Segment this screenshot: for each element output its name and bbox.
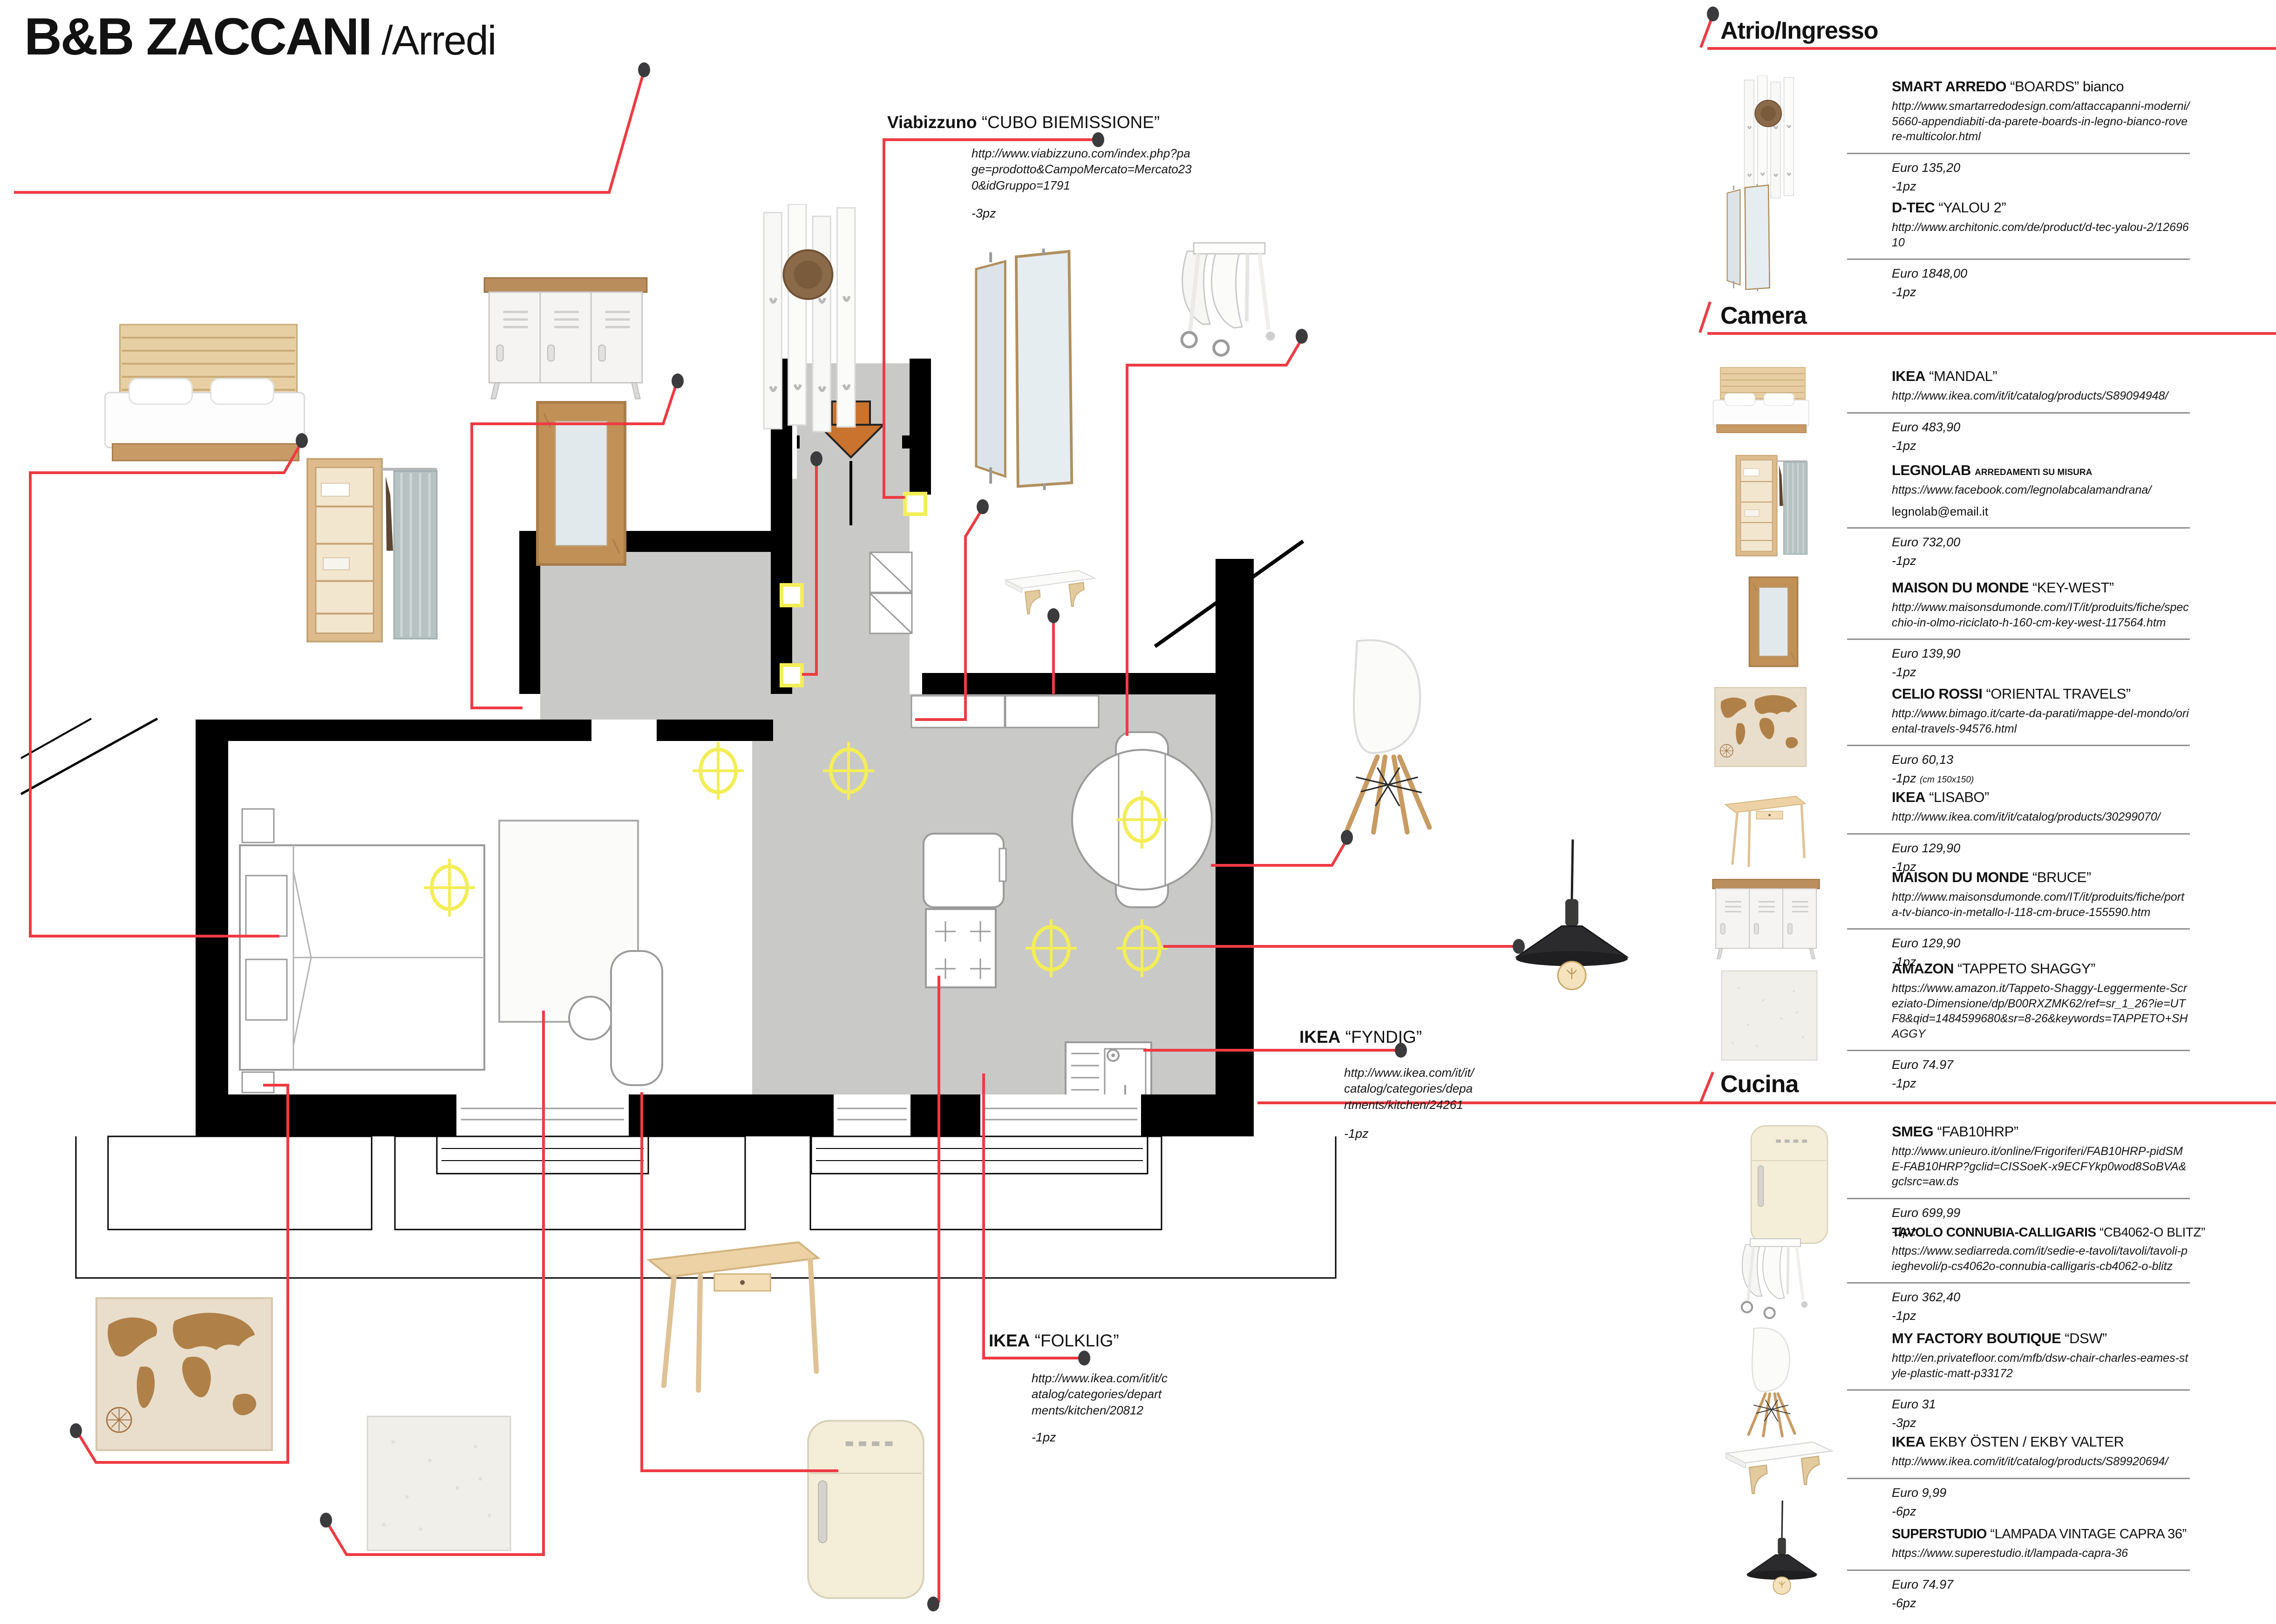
divider [1847, 745, 2190, 746]
plan-closet [870, 552, 912, 633]
product-item-tappeto-shaggy: AMAZON “TAPPETO SHAGGY” https://www.amaz… [1892, 960, 2190, 1091]
divider [1847, 639, 2190, 640]
product-item-capra: SUPERSTUDIO “LAMPADA VINTAGE CAPRA 36” h… [1892, 1527, 2190, 1610]
product-item-mandal: IKEA “MANDAL” http://www.ikea.com/it/it/… [1892, 368, 2190, 453]
photo-lamp-capra [1516, 840, 1628, 990]
thumb-bed [1707, 367, 1819, 434]
thumb-coatrack [1742, 75, 1798, 202]
plan-bed [240, 809, 484, 1093]
product-item-lisabo: IKEA “LISABO” http://www.ikea.com/it/it/… [1892, 789, 2190, 874]
divider [1847, 1050, 2190, 1051]
photo-table-blitz [1182, 243, 1275, 355]
divider [1847, 1282, 2190, 1284]
thumb-wardrobe [1733, 451, 1810, 558]
divider [1847, 527, 2190, 529]
photo-shelf-ekby [1006, 571, 1095, 614]
product-item-smeg: SMEG “FAB10HRP” http://www.unieuro.it/on… [1892, 1123, 2190, 1239]
divider [1847, 1198, 2190, 1199]
product-item-dtec: D-TEC “YALOU 2” http://www.architonic.co… [1892, 199, 2190, 299]
photo-rug-shaggy [367, 1416, 510, 1550]
page-title: B&B ZACCANI /Arredi [24, 7, 496, 67]
section-title-cucina: Cucina [1720, 1070, 1798, 1098]
spec-board: B&B ZACCANI /Arredi Viabizzuno “CUBO BIE… [0, 0, 2276, 1624]
photo-bed-mandal [105, 325, 305, 461]
product-item-smart-arredo: SMART ARREDO “BOARDS” bianco http://www.… [1892, 78, 2190, 194]
photo-worldmap [96, 1298, 272, 1450]
product-item-legnolab: LEGNOLAB ARREDAMENTI SU MISURA https://w… [1892, 462, 2190, 568]
thumb-desk [1723, 791, 1807, 868]
product-item-bruce: MAISON DU MONDE “BRUCE” http://www.maiso… [1892, 869, 2190, 969]
product-item-ekby: IKEA EKBY ÖSTEN / EKBY VALTER http://www… [1892, 1434, 2190, 1519]
thumb-wall-shelf [1723, 1435, 1835, 1510]
photo-cabinet-bruce [484, 278, 647, 399]
divider [1847, 1478, 2190, 1479]
annotation-title: IKEA “FOLKLIG” [989, 1331, 1119, 1351]
annotation-viabizzuno: Viabizzuno “CUBO BIEMISSIONE” [887, 113, 1160, 132]
annotation-folklig-url: http://www.ikea.com/it/it/catalog/catego… [1032, 1370, 1171, 1445]
thumb-mirror-keywest [1748, 576, 1799, 668]
divider [1847, 1389, 2190, 1391]
page-title-main: B&B ZACCANI [24, 7, 371, 66]
product-item-celio-rossi: CELIO ROSSI “ORIENTAL TRAVELS” http://ww… [1892, 686, 2190, 786]
annotation-title: Viabizzuno “CUBO BIEMISSIONE” [887, 113, 1160, 132]
divider [1847, 833, 2190, 835]
divider [1847, 412, 2190, 414]
thumb-folding-table [1733, 1226, 1817, 1319]
page-title-sub: /Arredi [371, 17, 496, 63]
product-item-blitz: TAVOLO CONNUBIA-CALLIGARIS “CB4062-O BLI… [1892, 1225, 2190, 1323]
annotation-fyndig-url: http://www.ikea.com/it/it/catalog/catego… [1344, 1065, 1474, 1141]
thumb-rug [1720, 970, 1818, 1061]
photo-fridge-smeg [808, 1421, 924, 1598]
photo-desk-lisabo [649, 1242, 818, 1390]
annotation-viabizzuno-url: http://www.viabizzuno.com/index.php?page… [972, 145, 1195, 221]
divider [1847, 153, 2190, 154]
thumb-cabinet [1710, 874, 1822, 961]
divider [1847, 1570, 2190, 1571]
section-title-atrio: Atrio/Ingresso [1720, 17, 1878, 45]
thumb-dsw-chair [1737, 1324, 1802, 1438]
divider [1847, 928, 2190, 930]
photo-mirror-keywest [537, 402, 625, 564]
product-item-dsw: MY FACTORY BOUTIQUE “DSW” http://en.priv… [1892, 1330, 2190, 1430]
thumb-pendant-lamp [1735, 1501, 1828, 1605]
plan-wall-shelves [911, 696, 1099, 727]
thumb-worldmap [1714, 686, 1807, 768]
photo-chair-dsw [1347, 640, 1429, 832]
annotation-fyndig: IKEA “FYNDIG” [1299, 1027, 1422, 1047]
photo-wardrobe-legnolab [307, 459, 437, 642]
product-item-keywest: MAISON DU MONDE “KEY-WEST” http://www.ma… [1892, 579, 2190, 679]
divider [1847, 258, 2190, 260]
annotation-folklig: IKEA “FOLKLIG” [989, 1331, 1119, 1351]
section-title-camera: Camera [1720, 302, 1807, 330]
floor-plan [21, 359, 1336, 1278]
photo-mirrors-yalou [976, 249, 1072, 490]
thumb-mirrors-yalou [1726, 184, 1772, 291]
annotation-title: IKEA “FYNDIG” [1299, 1027, 1422, 1047]
